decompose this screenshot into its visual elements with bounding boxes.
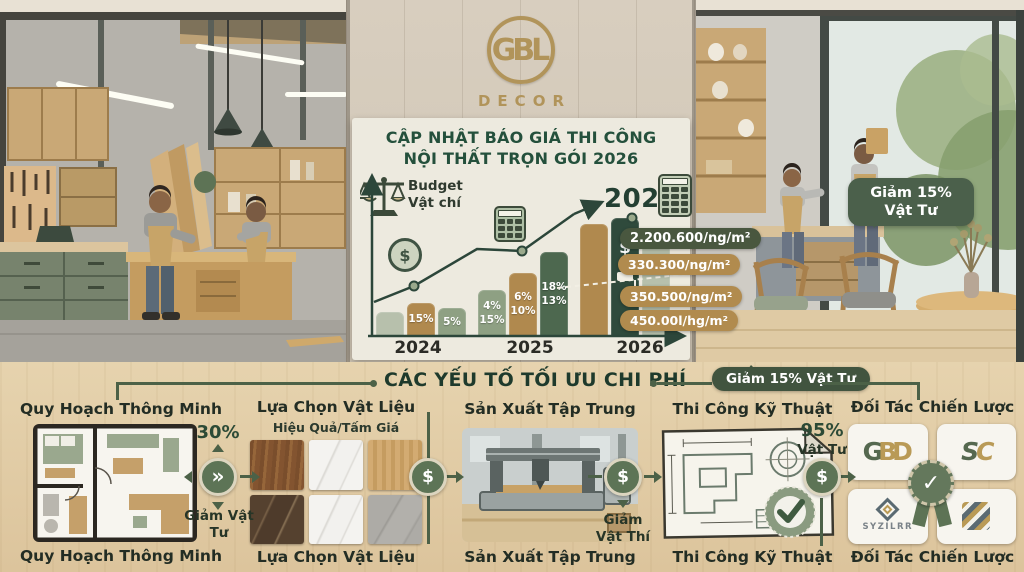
- arrow-right-icon: [654, 471, 662, 483]
- cost-factors-section: CÁC YẾU TỐ TỐI ƯU CHI PHÍ Giảm 15% Vật T…: [0, 362, 1024, 572]
- brand-wall: GBL DECOR CẬP NHẬT BÁO GIÁ THI CÔNG NỘI …: [346, 0, 696, 362]
- diamond-icon: [876, 497, 900, 521]
- dollar-icon: $: [619, 240, 631, 256]
- dollar-circle-icon: $: [803, 458, 841, 496]
- col4-caption: Thi Công Kỹ Thuật: [655, 548, 850, 566]
- bar-value-label: 13%: [541, 295, 566, 308]
- title-line-right: [657, 382, 712, 385]
- arrow-right-icon: [456, 471, 464, 483]
- floor-plan-image: [33, 424, 197, 542]
- dollar-coin-icon: $: [388, 238, 422, 272]
- section-title: CÁC YẾU TỐ TỐI ƯU CHI PHÍ: [384, 369, 646, 391]
- paint-icon: [617, 272, 633, 281]
- bar-value-label: 5%: [443, 316, 461, 329]
- col5-title: Đối Tác Chiến Lược: [840, 398, 1024, 416]
- gray-stone-swatch: [368, 495, 422, 545]
- chair-cushion: [754, 296, 808, 312]
- title-dot-right: [650, 380, 657, 387]
- gbd-letter: G: [863, 437, 879, 466]
- check-icon: ✓: [922, 471, 940, 496]
- arrow-right-icon: [252, 471, 260, 483]
- col2-title: Lựa Chọn Vật Liệu: [246, 398, 426, 416]
- infographic-poster: Giảm 15% Vật Tư GBL DECOR CẬP NHẬT BÁO G…: [0, 0, 1024, 572]
- x-label-2025: 2025: [490, 338, 570, 358]
- discount-pill: Giảm 15% Vật Tư: [712, 367, 870, 391]
- workshop-scene: [0, 0, 346, 362]
- col2-caption: Lựa Chọn Vật Liệu: [246, 548, 426, 566]
- title-line-left: [116, 382, 372, 385]
- arrow-right-icon: [848, 471, 856, 483]
- bar-value-label: 4%: [483, 300, 501, 313]
- arrow-up-icon: [212, 444, 224, 452]
- wood-panel: [866, 128, 888, 154]
- dollar-circle-icon: $: [409, 458, 447, 496]
- calculator-icon: [658, 174, 692, 217]
- col3-caption: Sản Xuất Tập Trung: [455, 548, 645, 566]
- award-ribbon-icon: ✓: [908, 460, 956, 508]
- stripes-icon: [962, 502, 990, 530]
- showroom-photo: Giảm 15% Vật Tư: [696, 0, 1024, 362]
- chart-bar: 4%15%: [478, 290, 506, 336]
- chair-cushion: [842, 292, 896, 308]
- col1-caption: Quy Hoạch Thông Minh: [20, 547, 210, 565]
- pill-line-right: [822, 382, 920, 385]
- bar-group-2024: 15%5%: [376, 303, 466, 336]
- title-dot-left: [370, 380, 377, 387]
- connector3-stem-left: [588, 475, 602, 478]
- arrow-left-icon: [184, 471, 192, 483]
- sc-letter: C: [976, 437, 991, 466]
- chart-area: 15%5% 4%15%6%10%18%13% $: [352, 170, 690, 360]
- sc-letter: S: [961, 437, 976, 466]
- connector4-line: [820, 498, 823, 546]
- connector1-caption: Giảm Vật Tư: [184, 508, 254, 542]
- chart-bar: [642, 228, 670, 336]
- x-label-2024: 2024: [378, 338, 458, 358]
- col2-subtitle: Hiệu Quả/Tấm Giá: [246, 420, 426, 435]
- bar-value-label: 10%: [510, 305, 535, 318]
- dollar-circle-icon: $: [604, 458, 642, 496]
- bar-value-label: 15%: [479, 314, 504, 327]
- discount-badge: Giảm 15% Vật Tư: [848, 178, 974, 226]
- gbd-letter: B: [878, 437, 892, 466]
- bar-value-label: 18%: [541, 281, 566, 294]
- material-swatch-grid: [250, 440, 422, 544]
- chart-bar: 18%13%: [540, 252, 568, 336]
- gbd-letter: D: [892, 437, 908, 466]
- budget-line2: Vật chí: [408, 195, 463, 212]
- bar-value-label: 15%: [408, 313, 433, 326]
- connector4-caption: Vật Tư: [792, 442, 852, 459]
- calculator-icon: [494, 206, 526, 242]
- chart-bar: [580, 224, 608, 336]
- dark-marble-swatch: [250, 495, 304, 545]
- partner-logos: GBD SC SYZILRR ✓: [848, 424, 1016, 544]
- connector4-percent: 95%: [792, 420, 852, 441]
- arrow-down-icon: [617, 500, 629, 508]
- logo-monogram: GBL: [492, 33, 547, 68]
- col5-caption: Đối Tác Chiến Lược: [840, 548, 1024, 566]
- bar-value-label: 6%: [514, 291, 532, 304]
- col3-title: Sản Xuất Tập Trung: [455, 400, 645, 418]
- chart-title: CẬP NHẬT BÁO GIÁ THI CÔNG NỘI THẤT TRỌN …: [352, 127, 690, 169]
- price-chart-card: CẬP NHẬT BÁO GIÁ THI CÔNG NỘI THẤT TRỌN …: [352, 118, 690, 360]
- chart-title-line2: NỘI THẤT TRỌN GÓI 2026: [352, 148, 690, 169]
- x-label-2026: 2026: [600, 338, 680, 358]
- display-shelves: [696, 28, 766, 213]
- balance-scale-icon: [360, 174, 408, 220]
- budget-annotation: Budget Vật chí: [408, 178, 463, 212]
- chevrons-circle-icon: »: [199, 458, 237, 496]
- workshop-photo: [0, 0, 346, 362]
- bar-group-2025: 4%15%6%10%18%13%: [478, 252, 568, 336]
- chart-title-line1: CẬP NHẬT BÁO GIÁ THI CÔNG: [352, 127, 690, 148]
- chart-bar: 6%10%: [509, 273, 537, 336]
- connector1-percent: 30%: [190, 422, 246, 443]
- budget-line1: Budget: [408, 178, 463, 195]
- syzilrr-text: SYZILRR: [862, 522, 913, 532]
- chart-bar: $: [611, 218, 639, 336]
- connector3-caption: Giảm Vật Thí: [591, 512, 655, 546]
- brand-logo: GBL DECOR: [346, 16, 696, 110]
- chart-bar: 5%: [438, 308, 466, 336]
- col4-title: Thi Công Kỹ Thuật: [655, 400, 850, 418]
- plant-icon: [194, 171, 216, 193]
- bar-group-2026: $: [580, 218, 670, 336]
- chart-bar: 15%: [407, 303, 435, 336]
- chart-bar: [376, 312, 404, 336]
- white-marble-swatch: [309, 440, 363, 490]
- white-marble-swatch: [309, 495, 363, 545]
- col1-title: Quy Hoạch Thông Minh: [20, 400, 210, 418]
- title-line-left-elbow: [116, 382, 119, 400]
- approval-stamp-icon: [765, 487, 815, 537]
- logo-ring-icon: GBL: [487, 16, 555, 84]
- logo-brand-text: DECOR: [346, 92, 696, 110]
